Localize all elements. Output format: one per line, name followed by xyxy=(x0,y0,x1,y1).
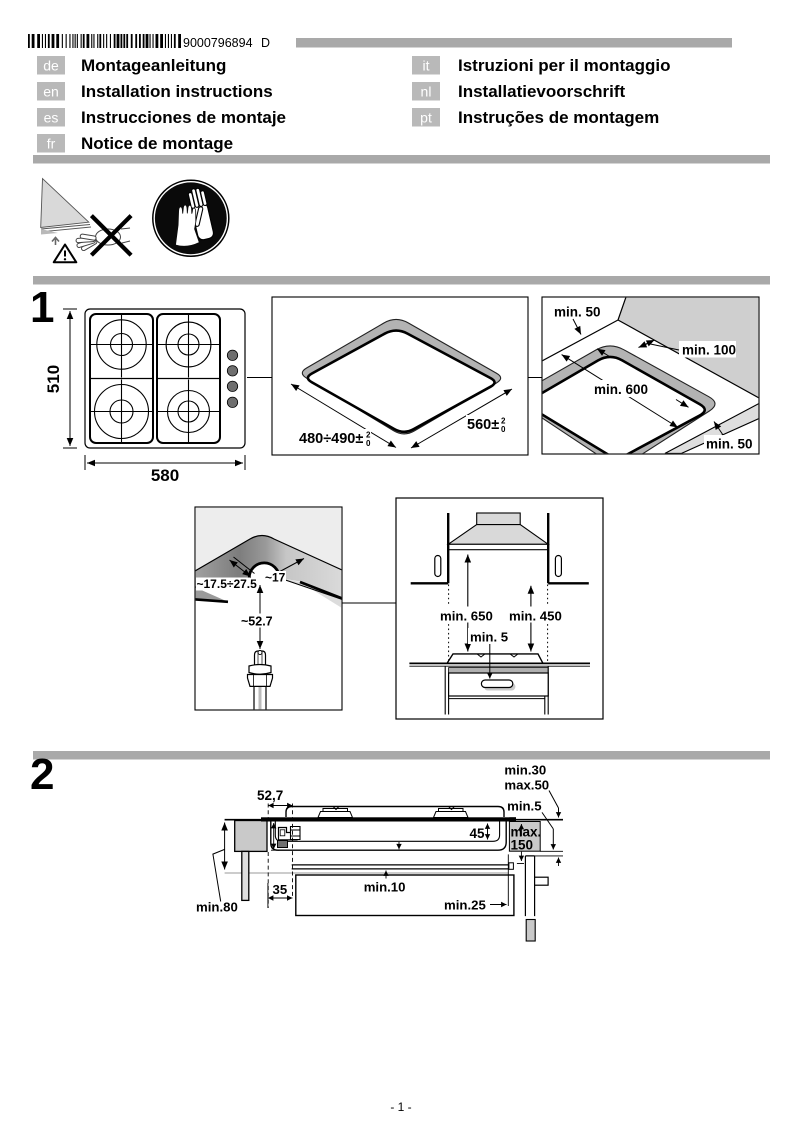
svg-text:Montageanleitung: Montageanleitung xyxy=(81,56,226,75)
svg-text:~17.5÷27.5: ~17.5÷27.5 xyxy=(197,577,258,591)
svg-text:min.5: min.5 xyxy=(507,799,541,814)
svg-text:2: 2 xyxy=(30,750,54,799)
svg-text:fr: fr xyxy=(47,136,56,152)
svg-text:9000796894: 9000796894 xyxy=(183,36,253,50)
svg-text:580: 580 xyxy=(151,466,179,485)
svg-text:nl: nl xyxy=(421,84,432,100)
svg-text:min.25: min.25 xyxy=(444,898,486,913)
svg-text:510: 510 xyxy=(44,365,63,393)
svg-text:es: es xyxy=(44,110,59,126)
svg-text:0: 0 xyxy=(366,439,371,448)
svg-text:de: de xyxy=(43,58,59,74)
svg-text:~52.7: ~52.7 xyxy=(241,615,273,629)
svg-text:Installatievoorschrift: Installatievoorschrift xyxy=(458,82,626,101)
svg-text:- 1 -: - 1 - xyxy=(390,1100,411,1114)
svg-text:min. 450: min. 450 xyxy=(509,609,562,624)
svg-text:min. 650: min. 650 xyxy=(440,609,493,624)
svg-text:min.80: min.80 xyxy=(196,900,238,915)
svg-text:min. 600: min. 600 xyxy=(594,382,648,397)
svg-text:it: it xyxy=(423,58,430,74)
svg-text:pt: pt xyxy=(420,110,432,126)
svg-text:0: 0 xyxy=(501,425,506,434)
svg-text:min. 5: min. 5 xyxy=(470,630,508,645)
svg-text:min.30: min.30 xyxy=(504,763,546,778)
svg-text:min. 50: min. 50 xyxy=(706,437,753,452)
svg-text:Installation instructions: Installation instructions xyxy=(81,82,273,101)
svg-text:35: 35 xyxy=(273,882,288,897)
svg-text:max.50: max.50 xyxy=(504,778,549,793)
svg-text:min. 100: min. 100 xyxy=(682,343,736,358)
svg-text:Istruzioni per il montaggio: Istruzioni per il montaggio xyxy=(458,56,671,75)
svg-text:min.10: min.10 xyxy=(364,880,406,895)
svg-text:en: en xyxy=(43,84,59,100)
svg-text:1: 1 xyxy=(30,283,54,332)
svg-text:~17: ~17 xyxy=(265,571,286,585)
svg-text:min. 50: min. 50 xyxy=(554,305,601,320)
svg-text:Instruções de montagem: Instruções de montagem xyxy=(458,108,659,127)
svg-text:480÷490±: 480÷490± xyxy=(299,431,363,447)
svg-text:45: 45 xyxy=(470,826,486,841)
svg-text:Instrucciones de montaje: Instrucciones de montaje xyxy=(81,108,286,127)
svg-text:D: D xyxy=(261,36,270,50)
svg-text:52,7: 52,7 xyxy=(257,788,283,803)
svg-text:560±: 560± xyxy=(467,417,499,433)
svg-text:150: 150 xyxy=(511,838,534,853)
svg-text:Notice de montage: Notice de montage xyxy=(81,134,233,153)
